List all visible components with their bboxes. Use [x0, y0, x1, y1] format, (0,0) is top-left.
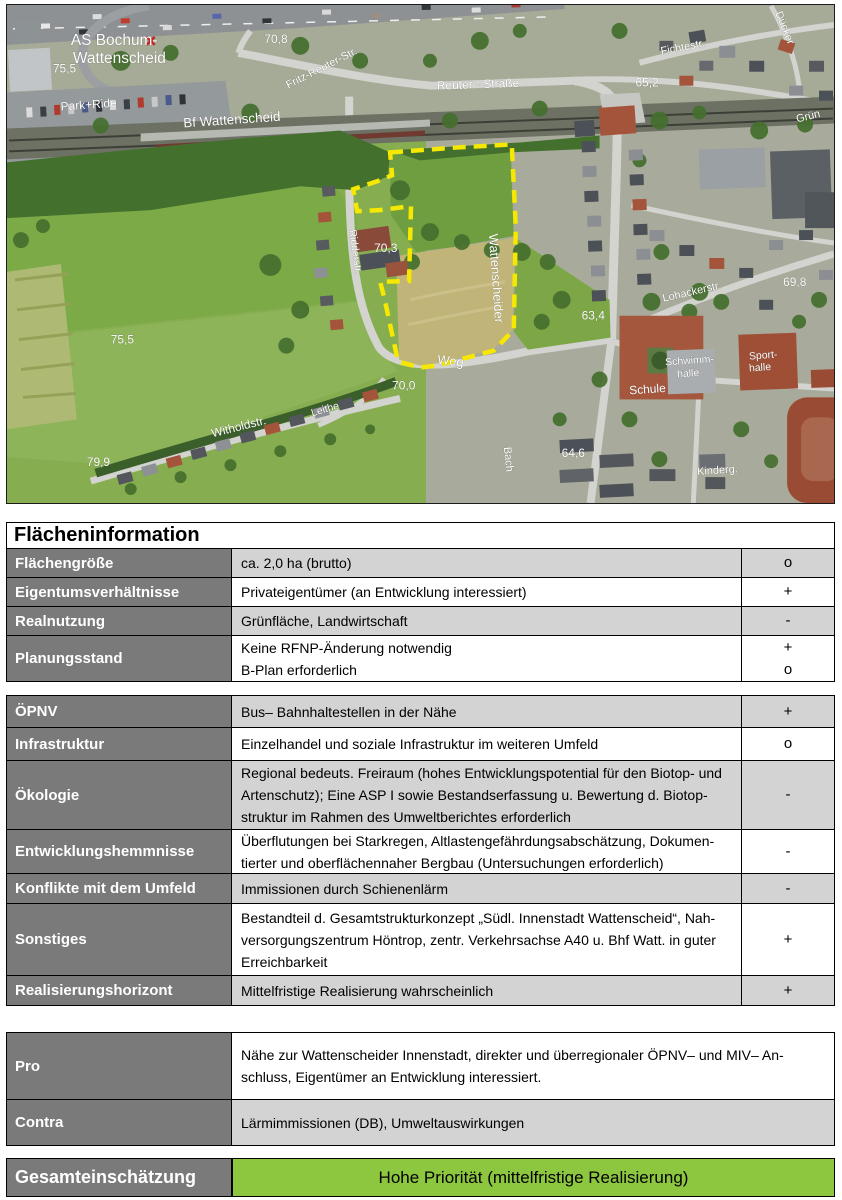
- table-title-row: Flächeninformation: [7, 523, 834, 548]
- row-label: Planungsstand: [7, 636, 232, 681]
- row-rating: +: [741, 976, 834, 1005]
- map-label-sporthalle-1: Sport-: [749, 350, 779, 363]
- map-label-as1: AS Bochum-: [71, 32, 158, 49]
- table-row: Realnutzung Grünfläche, Landwirtschaft -: [7, 606, 834, 635]
- row-label: Sonstiges: [7, 904, 232, 975]
- table-row-contra: Contra Lärmimmissionen (DB), Umweltauswi…: [7, 1099, 834, 1145]
- table-row: Realisierungshorizont Mittelfristige Rea…: [7, 975, 834, 1005]
- aerial-photo-svg: AS Bochum- Wattenscheid 75,5 70,8 Park+R…: [7, 5, 834, 503]
- table-row: Infrastruktur Einzelhandel und soziale I…: [7, 727, 834, 760]
- row-value: Bestandteil d. Gesamtstrukturkonzept „Sü…: [232, 904, 741, 975]
- map-label-h646: 64,6: [562, 446, 586, 460]
- pro-value: Nähe zur Wattenscheider Innenstadt, dire…: [232, 1033, 834, 1099]
- row-value: Mittelfristige Realisierung wahrscheinli…: [232, 976, 741, 1005]
- row-label: Realnutzung: [7, 607, 232, 635]
- map-label-h703: 70,3: [374, 241, 398, 255]
- flaecheninformation-table-block2: ÖPNV Bus– Bahnhaltestellen in der Nähe +…: [6, 695, 835, 1006]
- aerial-photo: AS Bochum- Wattenscheid 75,5 70,8 Park+R…: [6, 4, 835, 504]
- map-label-h700: 70,0: [392, 378, 416, 392]
- table-row: ÖPNV Bus– Bahnhaltestellen in der Nähe +: [7, 696, 834, 727]
- overall-priority-value: Hohe Priorität (mittelfristige Realisier…: [232, 1159, 834, 1196]
- row-value: Immissionen durch Schienenlärm: [232, 874, 741, 903]
- map-label-h799: 79,9: [87, 455, 111, 469]
- map-label-h708: 70,8: [264, 32, 288, 46]
- row-value: Überflutungen bei Starkregen, Altlasteng…: [232, 830, 741, 873]
- row-rating: -: [741, 874, 834, 903]
- map-label-frs2: Reuter - Straße: [437, 76, 520, 93]
- row-rating: -: [741, 761, 834, 829]
- row-label: Eigentumsverhältnisse: [7, 578, 232, 606]
- map-label-h755b: 75,5: [111, 333, 135, 347]
- row-rating: +: [741, 578, 834, 606]
- table-row-pro: Pro Nähe zur Wattenscheider Innenstadt, …: [7, 1033, 834, 1099]
- row-value: Bus– Bahnhaltestellen in der Nähe: [232, 696, 741, 727]
- map-label-as2: Wattenscheid: [73, 50, 166, 67]
- row-rating: -: [741, 830, 834, 873]
- table-row: Ökologie Regional bedeuts. Freiraum (hoh…: [7, 760, 834, 829]
- row-value: Regional bedeuts. Freiraum (hohes Entwic…: [232, 761, 741, 829]
- table-row-overall: Gesamteinschätzung Hohe Priorität (mitte…: [7, 1159, 834, 1196]
- pro-contra-table: Pro Nähe zur Wattenscheider Innenstadt, …: [6, 1032, 835, 1146]
- table-row: Entwicklungshemmnisse Überflutungen bei …: [7, 829, 834, 873]
- map-label-h652: 65,2: [635, 76, 659, 90]
- row-label: ÖPNV: [7, 696, 232, 727]
- contra-label: Contra: [7, 1100, 232, 1145]
- row-rating: + o: [741, 636, 834, 681]
- row-label: Infrastruktur: [7, 728, 232, 760]
- map-label-schule: Schule: [629, 381, 667, 398]
- table-row: Planungsstand Keine RFNP-Änderung notwen…: [7, 635, 834, 681]
- pro-label: Pro: [7, 1033, 232, 1099]
- row-rating: o: [741, 549, 834, 577]
- row-rating: -: [741, 607, 834, 635]
- overall-label: Gesamteinschätzung: [7, 1159, 232, 1196]
- map-label-weg: Weg: [437, 352, 465, 370]
- row-label: Entwicklungshemmnisse: [7, 830, 232, 873]
- row-value: Privateigentümer (an Entwicklung interes…: [232, 578, 741, 606]
- flaecheninformation-table-block1: Flächeninformation Flächengröße ca. 2,0 …: [6, 522, 835, 682]
- row-label: Realisierungshorizont: [7, 976, 232, 1005]
- table-row: Flächengröße ca. 2,0 ha (brutto) o: [7, 548, 834, 577]
- table-row: Eigentumsverhältnisse Privateigentümer (…: [7, 577, 834, 606]
- row-value: ca. 2,0 ha (brutto): [232, 549, 741, 577]
- row-rating: o: [741, 728, 834, 760]
- gesamteinschaetzung-table: Gesamteinschätzung Hohe Priorität (mitte…: [6, 1158, 835, 1197]
- map-label-schwimmhalle-2: halle: [677, 368, 700, 381]
- map-label-h755a: 75,5: [53, 62, 77, 76]
- row-value: Grünfläche, Landwirtschaft: [232, 607, 741, 635]
- row-value: Keine RFNP-Änderung notwendig B-Plan erf…: [232, 636, 741, 681]
- row-label: Ökologie: [7, 761, 232, 829]
- table-row: Sonstiges Bestandteil d. Gesamtstrukturk…: [7, 903, 834, 975]
- row-value: Einzelhandel und soziale Infrastruktur i…: [232, 728, 741, 760]
- table-row: Konflikte mit dem Umfeld Immissionen dur…: [7, 873, 834, 903]
- page-title: Flächeninformation: [7, 523, 834, 548]
- row-label: Flächengröße: [7, 549, 232, 577]
- contra-value: Lärmimmissionen (DB), Umweltauswirkungen: [232, 1100, 834, 1145]
- map-label-sporthalle-2: halle: [749, 362, 772, 375]
- map-label-h698: 69,8: [783, 275, 807, 289]
- row-label: Konflikte mit dem Umfeld: [7, 874, 232, 903]
- row-rating: +: [741, 696, 834, 727]
- map-label-h634: 63,4: [582, 309, 606, 323]
- row-rating: +: [741, 904, 834, 975]
